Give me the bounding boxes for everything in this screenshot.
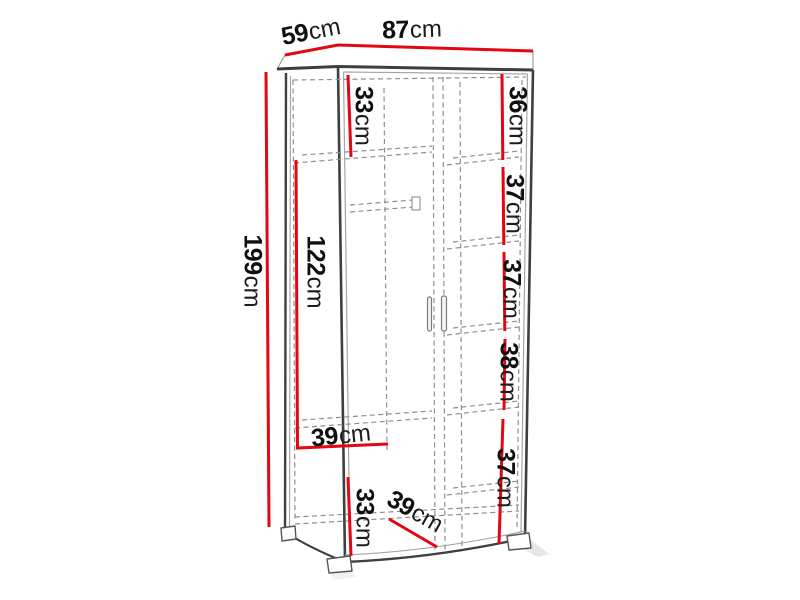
dim-value: 39 (310, 422, 340, 453)
dim-label-hanging-height: 122cm (303, 235, 328, 308)
dim-value: 37 (492, 448, 520, 475)
left-door-handle (428, 297, 432, 331)
dim-unit: cm (350, 114, 377, 146)
foot-front-right (507, 533, 531, 550)
dim-unit: cm (504, 114, 531, 146)
dim-label-bottom-left-height: 33cm (352, 488, 377, 548)
rail-bracket (412, 197, 420, 210)
dim-unit: cm (302, 277, 329, 309)
dim-value: 59 (279, 18, 311, 51)
dim-value: 122 (302, 235, 330, 275)
dim-label-right-shelf-2: 37cm (502, 174, 527, 234)
door-handles (428, 296, 447, 331)
dim-unit: cm (351, 516, 378, 548)
dim-unit: cm (498, 287, 525, 319)
dim-value: 36 (504, 86, 532, 113)
dim-value: 199 (239, 234, 267, 274)
dim-unit: cm (495, 370, 522, 402)
dim-line-height-199 (266, 72, 269, 527)
dim-label-right-shelf-4: 38cm (496, 342, 521, 402)
dim-unit: cm (501, 202, 528, 234)
dim-label-height-total: 199cm (240, 234, 265, 307)
dim-label-hanging-width: 39cm (310, 420, 372, 451)
wardrobe-dimension-diagram: 59cm 87cm 199cm 33cm 122cm 39cm 33cm 39c… (0, 0, 800, 600)
dim-value: 33 (351, 488, 379, 515)
dim-label-top-shelf-left: 33cm (351, 86, 376, 146)
dim-unit: cm (338, 419, 373, 449)
dim-label-width-top: 87cm (382, 16, 443, 43)
dim-value: 87 (382, 16, 410, 45)
dim-value: 38 (495, 342, 523, 369)
dim-unit: cm (239, 276, 266, 308)
dim-unit: cm (409, 15, 442, 43)
dim-label-right-shelf-5: 37cm (493, 448, 518, 508)
dim-value: 37 (498, 259, 526, 286)
dim-label-right-shelf-1: 36cm (505, 86, 530, 146)
dim-label-right-shelf-3: 37cm (499, 259, 524, 319)
dim-value: 37 (501, 174, 529, 201)
dim-value: 33 (350, 86, 378, 113)
right-door-handle (442, 296, 447, 331)
foot-back-left (281, 526, 296, 541)
dim-unit: cm (492, 476, 519, 508)
foot-front-left (327, 556, 352, 573)
